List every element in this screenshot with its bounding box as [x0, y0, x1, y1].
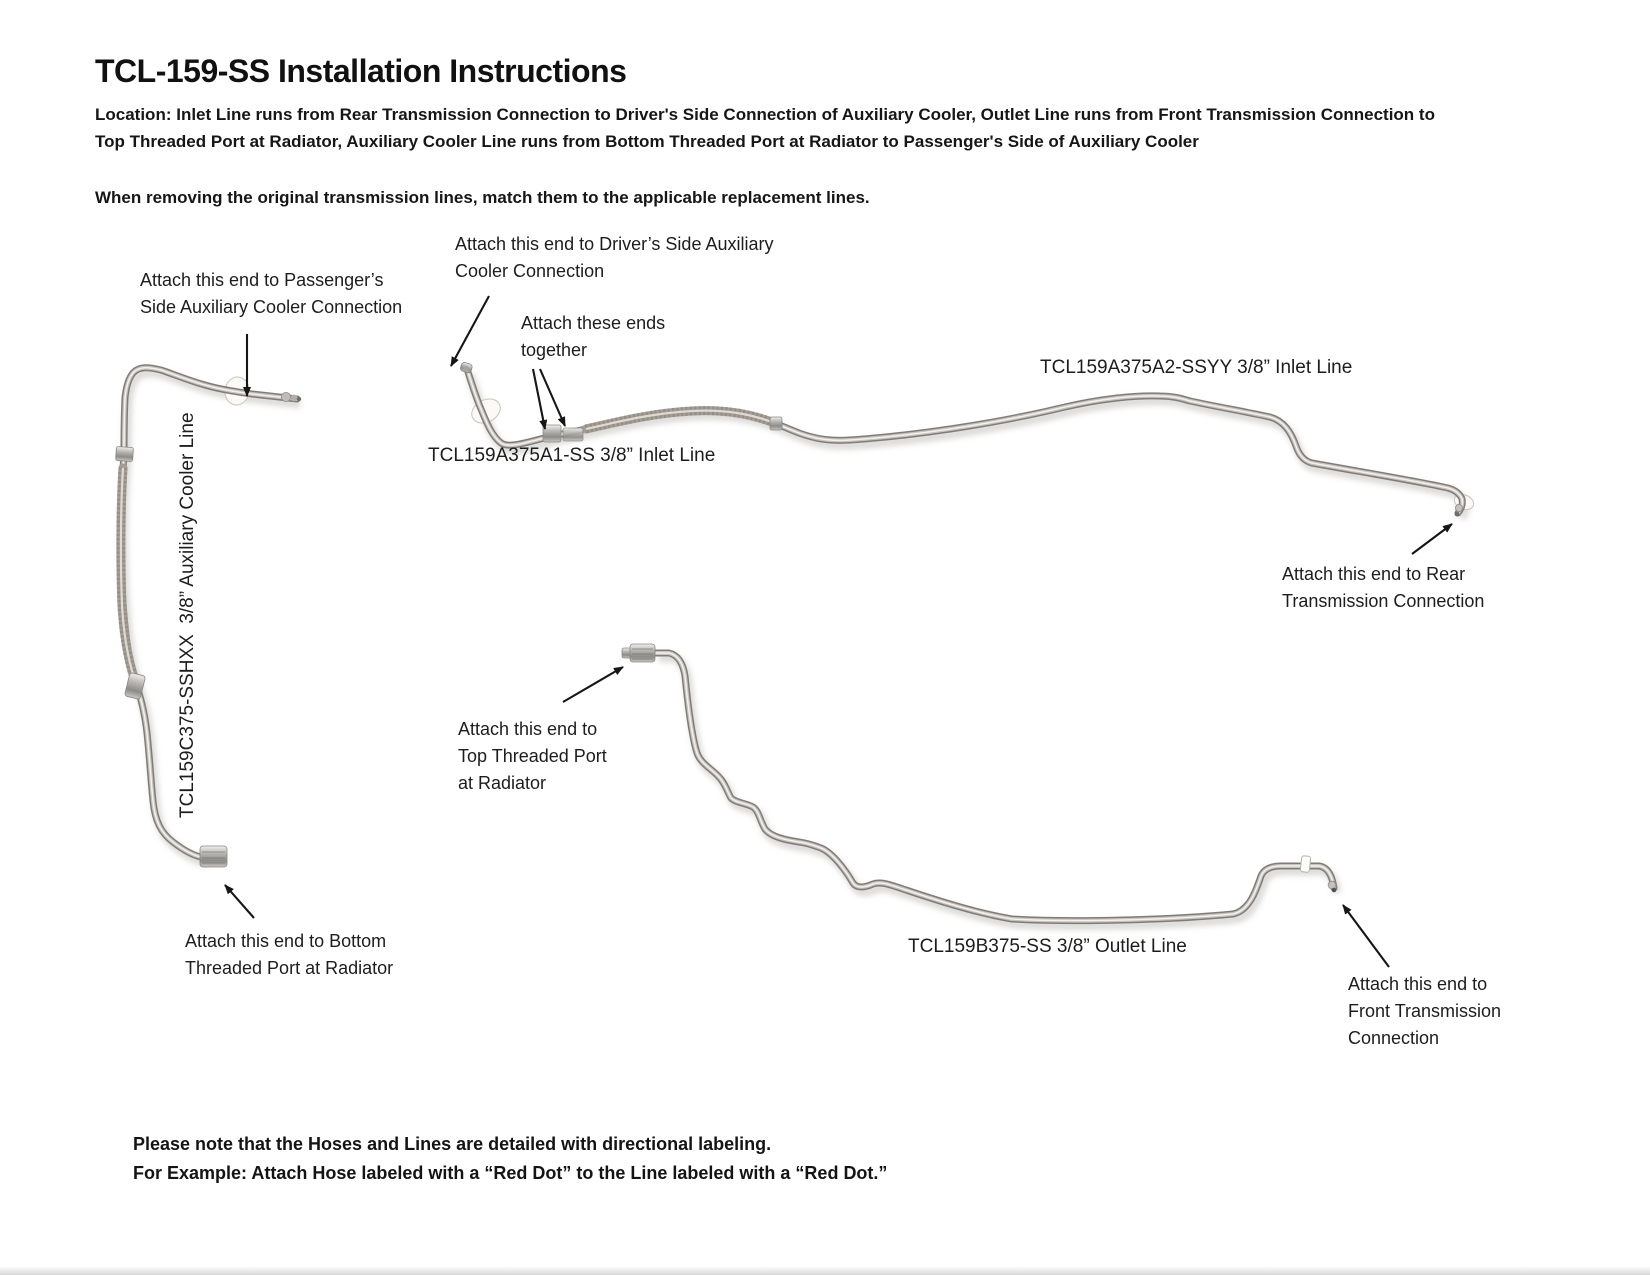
label-inlet-a2: TCL159A375A2-SSYY 3/8” Inlet Line — [1040, 356, 1352, 380]
retaining-clip — [1300, 856, 1311, 873]
braid-crimp — [770, 417, 782, 430]
annotation-line: Cooler Connection — [455, 258, 773, 285]
label-aux-cooler-line: TCL159C375-SSHXX 3/8” Auxiliary Cooler L… — [176, 412, 200, 818]
annotation-line: Attach this end to — [1348, 971, 1501, 998]
annotation-line: Top Threaded Port — [458, 743, 607, 770]
outlet-hex-fitting — [622, 644, 655, 662]
annotation-line: Attach this end to — [458, 716, 607, 743]
arrow-front-connection — [1343, 905, 1389, 967]
annotation-line: Transmission Connection — [1282, 588, 1484, 615]
front-end-tip — [1328, 881, 1336, 892]
annotation-line: Side Auxiliary Cooler Connection — [140, 294, 402, 321]
annotation-line: at Radiator — [458, 770, 607, 797]
arrow-bottom-port — [225, 885, 254, 918]
directional-labeling-note: Please note that the Hoses and Lines are… — [133, 1130, 887, 1188]
note-line: Please note that the Hoses and Lines are… — [133, 1130, 887, 1159]
note-line: For Example: Attach Hose labeled with a … — [133, 1159, 887, 1188]
coupling-sleeve — [563, 428, 583, 441]
annotation-line: Attach this end to Rear — [1282, 561, 1484, 588]
page-title: TCL-159-SS Installation Instructions — [95, 53, 626, 90]
outlet-line-graphic — [622, 644, 1336, 921]
inlet-line-graphic — [460, 362, 1463, 517]
annotation-rear-connection: Attach this end to Rear Transmission Con… — [1282, 561, 1484, 615]
annotation-line: Front Transmission — [1348, 998, 1501, 1025]
label-inlet-a1: TCL159A375A1-SS 3/8” Inlet Line — [428, 444, 715, 468]
removal-note: When removing the original transmission … — [95, 188, 870, 208]
annotation-driver-end: Attach this end to Driver’s Side Auxilia… — [455, 231, 773, 285]
aux-hex-fitting — [200, 846, 227, 867]
annotation-line: Threaded Port at Radiator — [185, 955, 393, 982]
arrow-rear-connection — [1412, 524, 1452, 554]
annotation-attach-together: Attach these ends together — [521, 310, 665, 364]
arrow-top-port — [563, 667, 623, 702]
label-outlet-b: TCL159B375-SS 3/8” Outlet Line — [908, 935, 1187, 959]
annotation-line: Connection — [1348, 1025, 1501, 1052]
annotation-line: Attach this end to Bottom — [185, 928, 393, 955]
installation-instructions-page: TCL-159-SS Installation Instructions Loc… — [0, 0, 1650, 1275]
annotation-line: Attach this end to Driver’s Side Auxilia… — [455, 231, 773, 258]
annotation-line: Attach this end to Passenger’s — [140, 267, 402, 294]
aux-upper-ferrule — [116, 446, 134, 461]
annotation-line: together — [521, 337, 665, 364]
annotation-passenger-end: Attach this end to Passenger’s Side Auxi… — [140, 267, 402, 321]
annotation-front-connection: Attach this end to Front Transmission Co… — [1348, 971, 1501, 1052]
annotation-bottom-port: Attach this end to Bottom Threaded Port … — [185, 928, 393, 982]
location-description: Location: Inlet Line runs from Rear Tran… — [95, 101, 1460, 155]
aux-cooler-line-graphic — [116, 368, 302, 867]
page-edge-shading — [0, 1266, 1650, 1275]
driver-end-tip — [460, 362, 473, 374]
annotation-top-port: Attach this end to Top Threaded Port at … — [458, 716, 607, 797]
arrow-driver-end — [451, 296, 489, 366]
annotation-line: Attach these ends — [521, 310, 665, 337]
